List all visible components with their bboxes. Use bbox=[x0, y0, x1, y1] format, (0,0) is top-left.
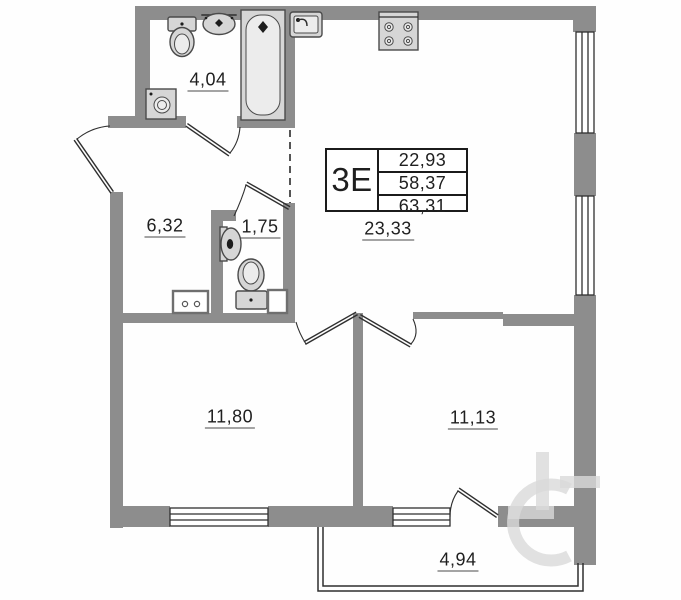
unit-stat-row: 63,31 bbox=[379, 196, 466, 217]
wall-room-right-top-thick bbox=[503, 314, 574, 326]
area-label-room-right: 11,13 bbox=[448, 408, 498, 429]
bathroom-door-swing-icon bbox=[186, 124, 240, 156]
wall-room-right-top-thin bbox=[413, 312, 503, 319]
cabinet-icon bbox=[173, 291, 208, 313]
window-right-upper bbox=[576, 32, 594, 133]
washing-machine-icon bbox=[146, 89, 176, 119]
unit-stat-row: 22,93 bbox=[379, 150, 466, 173]
wall-top-right-corner bbox=[573, 6, 596, 32]
wall-bottom-middle bbox=[268, 506, 393, 527]
balcony-door-swing-icon bbox=[450, 489, 498, 518]
wall-right-pier bbox=[574, 133, 596, 196]
wall-left bbox=[110, 192, 123, 528]
wall-middle bbox=[110, 313, 295, 323]
unit-stats: 22,93 58,37 63,31 bbox=[379, 150, 466, 210]
unit-stat-row: 58,37 bbox=[379, 173, 466, 196]
floor-plan: 4,04 6,32 1,75 23,33 11,80 11,13 4,94 3E… bbox=[0, 0, 681, 600]
bathtub-icon bbox=[241, 10, 285, 120]
area-label-room-left: 11,80 bbox=[205, 407, 255, 428]
stove-icon bbox=[379, 12, 418, 50]
area-label-hallway: 6,32 bbox=[144, 216, 185, 237]
wc-toilet-icon bbox=[236, 259, 267, 309]
wall-top bbox=[135, 6, 596, 20]
area-label-wc: 1,75 bbox=[239, 217, 280, 238]
area-label-balcony: 4,94 bbox=[437, 550, 478, 571]
walls bbox=[108, 6, 596, 565]
toilet-icon bbox=[168, 17, 196, 57]
vent-shaft-icon bbox=[268, 290, 287, 313]
wall-center-post bbox=[353, 313, 363, 506]
window-right-middle bbox=[576, 196, 594, 295]
window-room-right bbox=[393, 508, 450, 526]
area-label-kitchen-living: 23,33 bbox=[362, 219, 414, 240]
wall-bottom-left bbox=[110, 506, 170, 527]
wc-door-swing-icon bbox=[234, 182, 290, 216]
wc-sink-icon bbox=[220, 227, 241, 261]
area-label-bathroom: 4,04 bbox=[187, 70, 228, 91]
window-room-left bbox=[170, 508, 268, 526]
entry-door-swing-icon bbox=[75, 126, 114, 193]
room-right-door-swing-icon bbox=[360, 315, 417, 347]
kitchen-sink-icon bbox=[290, 12, 322, 37]
unit-label: 3E bbox=[327, 150, 379, 210]
floor-plan-canvas bbox=[0, 0, 681, 600]
unit-card: 3E 22,93 58,37 63,31 bbox=[325, 148, 468, 212]
room-left-door-swing-icon bbox=[296, 312, 357, 344]
bathroom-sink-icon bbox=[202, 14, 236, 35]
